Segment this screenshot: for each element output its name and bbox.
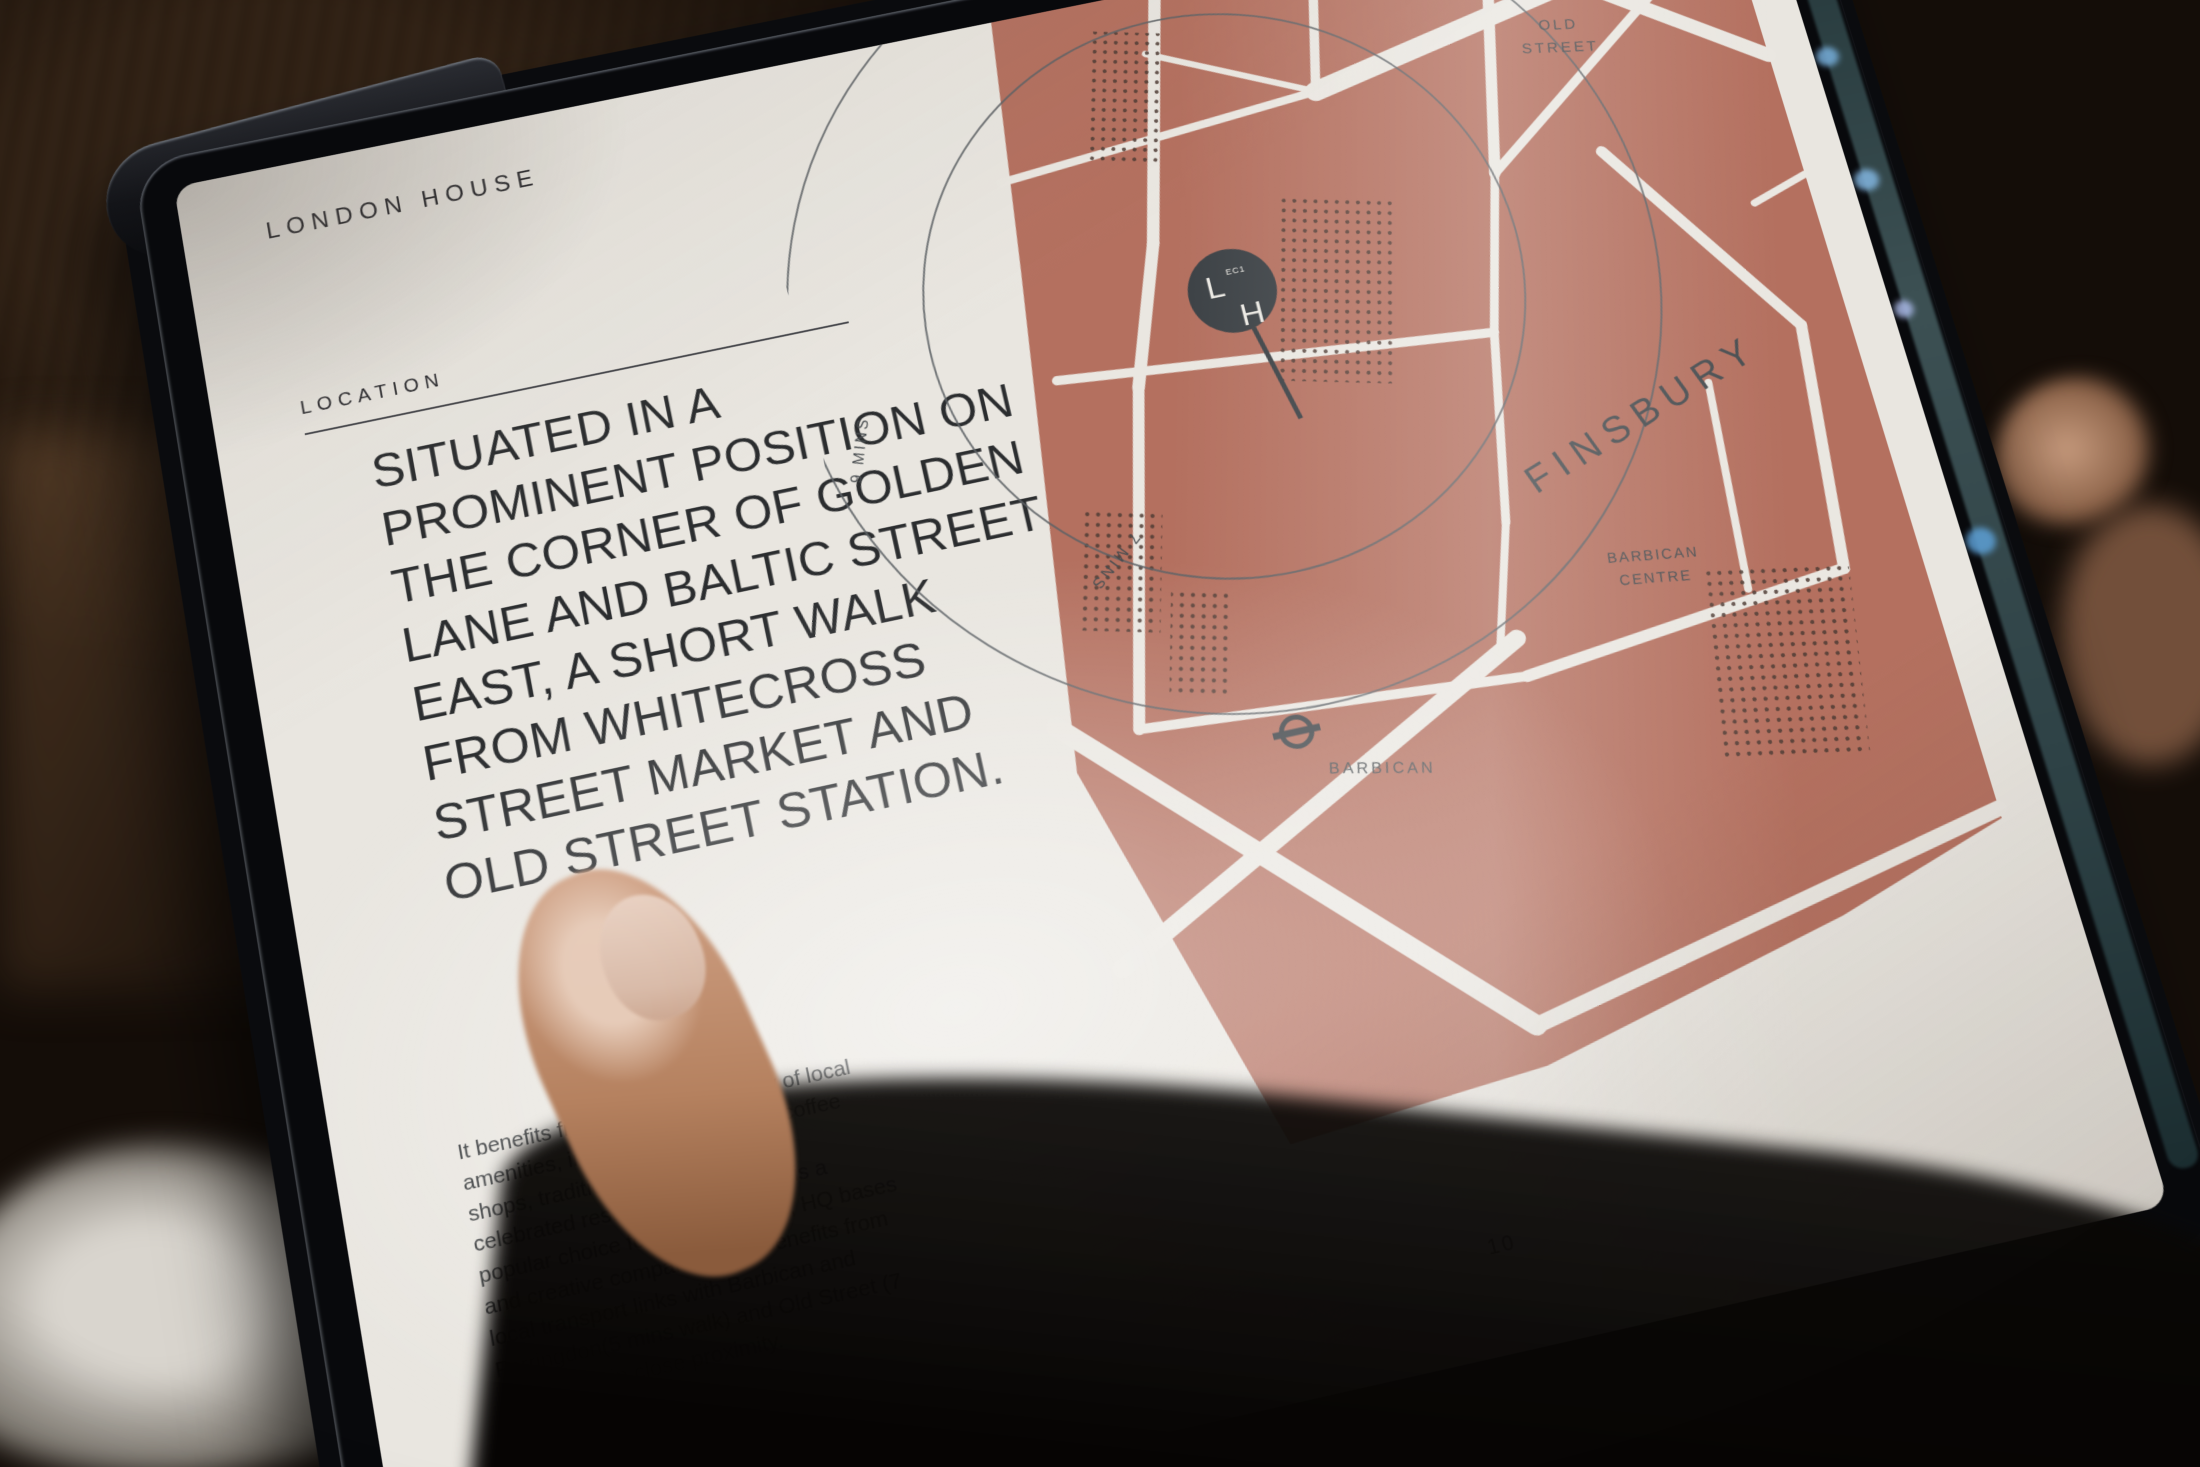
photo-scene: LONDON HOUSE LOCATION SITUATED IN APROMI… xyxy=(0,0,2200,1467)
brand-title: LONDON HOUSE xyxy=(264,164,541,245)
svg-text:STREET: STREET xyxy=(1521,39,1599,57)
old-street-station-label: OLD xyxy=(1538,17,1579,34)
barbican-station-label: BARBICAN xyxy=(1329,759,1436,777)
section-label: LOCATION xyxy=(299,369,447,419)
nine-mins-ring-label: 9 MINS xyxy=(848,416,873,484)
